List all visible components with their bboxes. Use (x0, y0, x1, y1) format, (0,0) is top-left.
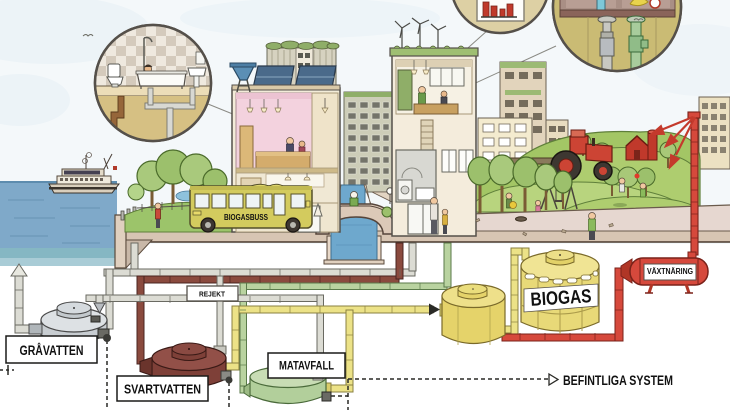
svg-text:VÄXTNÄRING: VÄXTNÄRING (647, 267, 693, 276)
svg-text:BIOGASBUSS: BIOGASBUSS (224, 212, 268, 222)
svg-text:GRÅVATTEN: GRÅVATTEN (20, 343, 84, 358)
svg-text:MATAVFALL: MATAVFALL (279, 359, 334, 373)
svg-text:BIOGAS: BIOGAS (530, 286, 592, 311)
svg-text:BEFINTLIGA SYSTEM: BEFINTLIGA SYSTEM (563, 372, 673, 388)
svg-text:SVARTVATTEN: SVARTVATTEN (124, 382, 201, 397)
svg-text:REJEKT: REJEKT (199, 290, 225, 299)
